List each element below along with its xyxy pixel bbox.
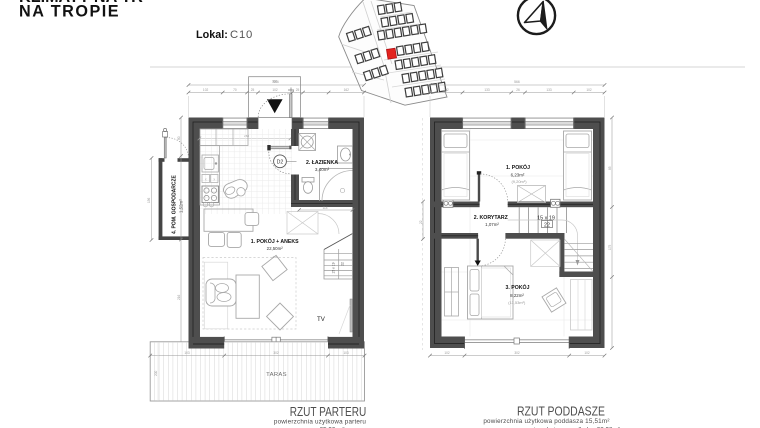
svg-text:103: 103 [184,351,190,355]
svg-text:156: 156 [147,197,151,203]
svg-text:1,07m²: 1,07m² [485,222,499,227]
svg-text:powierzchnia użytkowa parteru: powierzchnia użytkowa parteru [274,418,367,425]
svg-text:26: 26 [516,88,520,92]
svg-text:102: 102 [443,88,449,92]
svg-text:80: 80 [177,136,181,140]
svg-text:(11,53m²): (11,53m²) [508,300,526,305]
svg-text:102: 102 [584,351,590,355]
svg-text:Lokal:: Lokal: [196,29,228,41]
svg-text:D2: D2 [277,160,284,166]
svg-text:4. POM. GOSPODARCZE: 4. POM. GOSPODARCZE [171,174,177,234]
svg-text:x: x [213,178,215,182]
svg-text:306: 306 [272,80,278,84]
svg-text:102: 102 [203,88,209,92]
svg-text:70: 70 [233,88,237,92]
svg-text:102: 102 [272,88,278,92]
svg-text:NA TROPIE: NA TROPIE [19,2,120,20]
svg-text:25: 25 [296,88,300,92]
svg-text:440: 440 [272,255,277,259]
svg-text:1. POKÓJ: 1. POKÓJ [506,163,530,171]
svg-text:22: 22 [544,222,550,228]
svg-text:TV: TV [317,316,326,323]
svg-text:C10: C10 [230,29,253,41]
svg-text:22: 22 [419,220,423,224]
svg-text:302: 302 [273,351,279,355]
svg-text:powierzchnia użytkowa poddasza: powierzchnia użytkowa poddasza 15,51m² [483,418,609,425]
svg-text:200: 200 [154,370,158,376]
svg-text:15 x 19: 15 x 19 [332,262,336,273]
svg-text:22: 22 [341,262,345,266]
svg-text:102: 102 [586,88,592,92]
svg-text:175: 175 [608,244,612,250]
svg-text:3,40m²: 3,40m² [315,167,330,172]
svg-text:302: 302 [514,351,520,355]
svg-text:TARAS: TARAS [266,372,287,378]
svg-text:114: 114 [322,206,327,210]
svg-text:RZUT PARTERU: RZUT PARTERU [290,405,367,419]
svg-text:1. POKÓJ + ANEKS: 1. POKÓJ + ANEKS [251,237,299,245]
svg-text:6,23m²: 6,23m² [511,173,525,178]
svg-text:(9,20m²): (9,20m²) [511,179,527,184]
svg-text:2. ŁAZIENKA: 2. ŁAZIENKA [306,160,338,166]
svg-text:2. KORYTARZ: 2. KORYTARZ [474,215,509,221]
svg-text:216: 216 [177,294,181,300]
svg-text:8,22m²: 8,22m² [510,293,524,298]
svg-text:133: 133 [484,88,490,92]
svg-text:25: 25 [251,88,255,92]
svg-text:162: 162 [344,88,350,92]
svg-text:268: 268 [244,134,249,138]
svg-text:103: 103 [343,351,349,355]
svg-text:133: 133 [546,88,552,92]
svg-text:22,50m²: 22,50m² [267,246,284,251]
svg-text:102: 102 [444,351,450,355]
svg-text:85: 85 [608,166,612,170]
svg-text:566: 566 [514,80,520,84]
svg-text:3. POKÓJ: 3. POKÓJ [506,283,530,291]
svg-text:x: x [205,178,207,182]
svg-text:RZUT PODDASZE: RZUT PODDASZE [517,403,605,418]
